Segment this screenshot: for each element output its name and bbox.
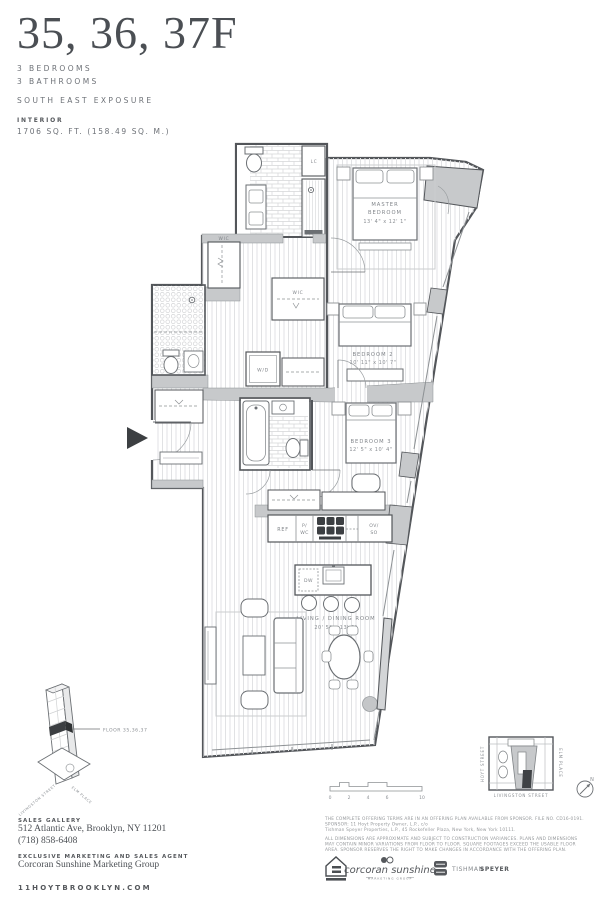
legal-line: Tishman Speyer Properties, L.P., 45 Rock…: [324, 827, 516, 833]
legal-line: AREA. SPONSOR RESERVES THE RIGHT TO MAKE…: [325, 847, 567, 853]
legal-line: MAY CONTAIN MINOR VARIATIONS FROM FLOOR …: [325, 842, 576, 848]
tv-console: [205, 627, 216, 684]
dining-chair: [329, 626, 340, 635]
compass-icon: N: [577, 777, 594, 797]
floor-callout: FLOOR 35,36,37: [103, 728, 147, 734]
tishman-wordmark: TISHMAN: [451, 866, 484, 873]
toilet-icon: [245, 147, 263, 154]
refrigerator-label: REF: [277, 527, 289, 533]
oven-label-2: SO: [370, 530, 377, 536]
toilet-icon: [163, 350, 179, 356]
dining-chair: [329, 680, 340, 689]
legal-line: ALL DIMENSIONS ARE APPROXIMATE AND SUBJE…: [325, 836, 577, 842]
legal-text: THE COMPLETE OFFERING TERMS ARE IN AN OF…: [324, 816, 584, 853]
sofa-icon: [274, 618, 303, 693]
sales-gallery-address: 512 Atlantic Ave, Brooklyn, NY 11201: [18, 824, 188, 836]
podium: [38, 748, 90, 780]
armchair-icon: [241, 599, 268, 617]
equal-housing-icon: [326, 857, 346, 881]
building-street-livingston: LIVINGSTON STREET: [18, 783, 57, 816]
toilet-icon: [300, 440, 308, 456]
plan-graphics: LC: [0, 0, 615, 900]
corcoran-sunshine-subtext: MARKETING GROUP: [368, 877, 413, 881]
building-diagram: FLOOR 35,36,37 LIVINGSTON STREET ELM PLA…: [18, 684, 147, 817]
corcoran-sunshine-wordmark: corcoran sunshine: [344, 865, 436, 876]
wic-left-label: WIC: [218, 236, 229, 242]
pantry-wc-label-1: P/: [302, 523, 307, 529]
map-street-livingston: LIVINGSTON STREET: [494, 793, 549, 798]
dining-chair: [347, 680, 358, 689]
floorplan-page: 35, 36, 37F 3 BEDROOMS 3 BATHROOMS SOUTH…: [0, 0, 615, 900]
bathroom-2: [152, 285, 205, 375]
dishwasher-label: DW: [304, 578, 313, 584]
corcoran-sunshine-logo: corcoran sunshine MARKETING GROUP: [344, 857, 436, 881]
legal-line: THE COMPLETE OFFERING TERMS ARE IN AN OF…: [324, 816, 584, 822]
master-bedroom-dims: 13' 4" x 12' 1": [363, 219, 406, 225]
scale-tick-6: 6: [386, 795, 389, 801]
bedroom2-dims: 10' 11" x 10' 7": [350, 360, 397, 366]
entry-arrow-icon: [127, 427, 148, 449]
oven-label-1: OV/: [369, 523, 378, 529]
plant-icon: [363, 697, 378, 712]
bedroom3-dims: 12' 5" x 10' 4": [349, 447, 392, 453]
armchair-icon: [241, 691, 268, 709]
coffee-table: [243, 636, 265, 675]
building-street-elm: ELM PLACE: [71, 786, 93, 805]
scale-tick-10: 10: [419, 795, 425, 801]
living-room-label: LIVING / DINING ROOM: [296, 616, 375, 622]
website-link[interactable]: 11HOYTBROOKLYN.COM: [18, 884, 188, 892]
scale-tick-0: 0: [329, 795, 332, 801]
master-bathroom: LC: [236, 144, 327, 237]
footer-contact: SALES GALLERY 512 Atlantic Ave, Brooklyn…: [18, 818, 188, 892]
armchair-icon: [352, 474, 380, 492]
agent-name: Corcoran Sunshine Marketing Group: [18, 860, 188, 872]
site-map: HOYT STREET ELM PLACE LIVINGSTON STREET …: [480, 737, 594, 798]
washer-dryer-label: W/D: [257, 368, 269, 374]
legal-line: SPONSOR: 11 Hoyt Property Owner, L.P., c…: [325, 822, 428, 828]
map-street-elm: ELM PLACE: [558, 748, 563, 777]
dining-chair: [364, 651, 373, 662]
speyer-wordmark: SPEYER: [480, 866, 509, 873]
dining-table: [328, 635, 360, 679]
linen-closet-label: LC: [311, 159, 317, 164]
tishman-speyer-logo: TISHMAN SPEYER: [434, 861, 509, 876]
scale-tick-2: 2: [348, 795, 351, 801]
logos: corcoran sunshine MARKETING GROUP TISHMA…: [326, 857, 509, 881]
bedroom2-label: BEDROOM 2: [352, 352, 393, 358]
dresser-icon: [347, 369, 403, 381]
master-bedroom-label-2: BEDROOM: [368, 210, 402, 216]
map-street-hoyt: HOYT STREET: [480, 746, 485, 782]
compass-north-label: N: [590, 777, 594, 783]
floorplan: LC: [127, 144, 483, 757]
master-bedroom-label-1: MASTER: [371, 202, 398, 208]
unit-location: [522, 770, 532, 788]
scale-bar: 0 2 4 6 10: [329, 783, 425, 802]
dining-chair: [347, 626, 358, 635]
sales-gallery-phone: (718) 858-6408: [18, 836, 188, 848]
scale-tick-4: 4: [367, 795, 370, 801]
bathroom-3: [240, 398, 310, 470]
wic-right-label: WIC: [292, 290, 303, 296]
dining-chair: [322, 651, 331, 662]
bedroom3-label: BEDROOM 3: [350, 439, 391, 445]
stool-icon: [345, 598, 360, 613]
sink-icon: [272, 401, 294, 414]
stool-icon: [302, 596, 317, 611]
stool-icon: [324, 597, 339, 612]
pantry-wc-label-2: WC: [300, 530, 309, 536]
